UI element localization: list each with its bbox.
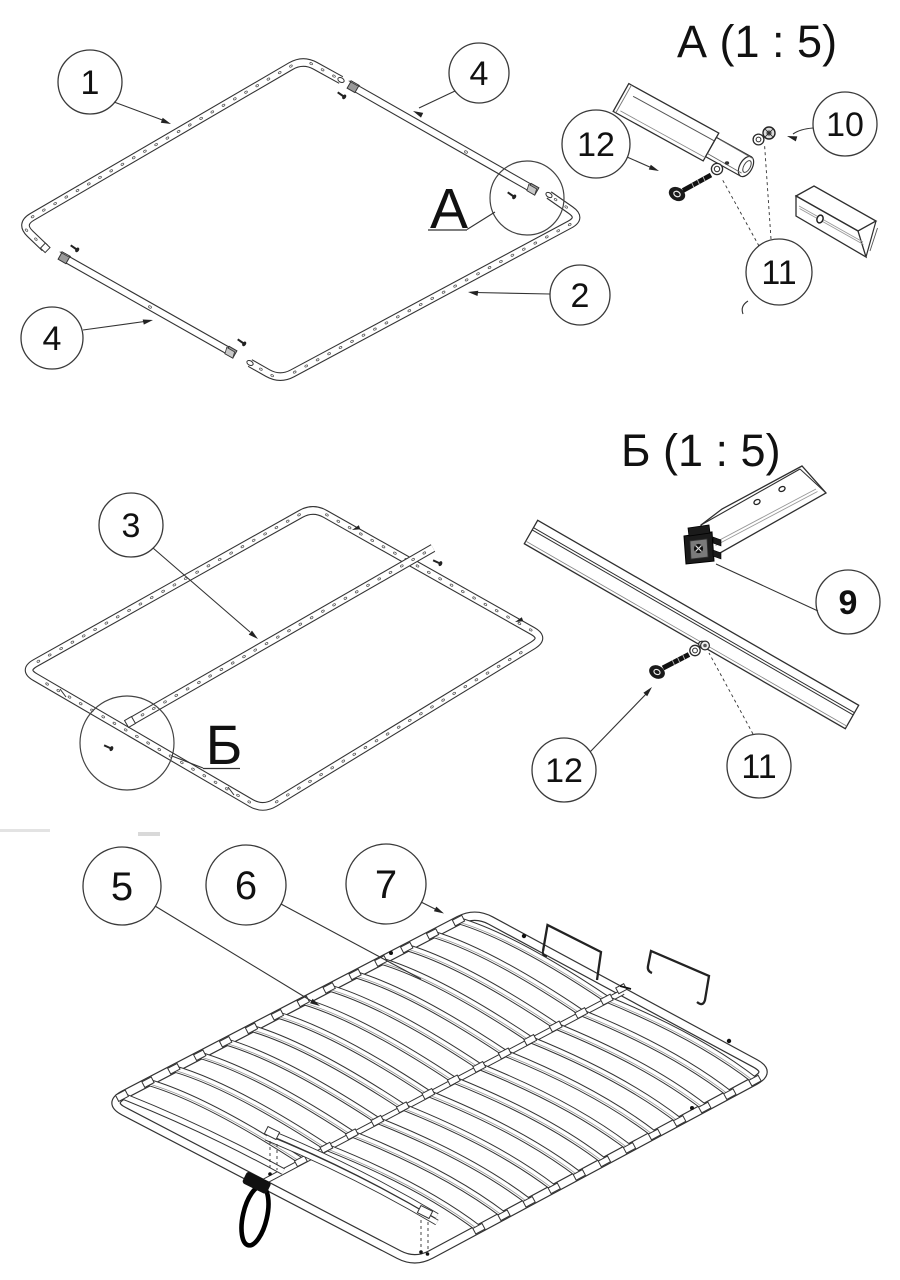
svg-text:10: 10 xyxy=(826,106,864,144)
svg-text:Б (1 : 5): Б (1 : 5) xyxy=(621,425,781,476)
svg-text:12: 12 xyxy=(545,752,583,790)
svg-text:4: 4 xyxy=(43,320,62,358)
svg-text:9: 9 xyxy=(839,584,858,622)
svg-text:6: 6 xyxy=(235,864,257,908)
svg-text:1: 1 xyxy=(81,64,100,102)
svg-text:11: 11 xyxy=(761,254,796,292)
svg-text:11: 11 xyxy=(741,748,776,786)
svg-text:7: 7 xyxy=(375,863,397,907)
svg-text:2: 2 xyxy=(571,277,590,315)
svg-text:А (1 : 5): А (1 : 5) xyxy=(677,16,837,67)
svg-text:А: А xyxy=(430,177,468,241)
svg-text:Б: Б xyxy=(206,713,243,776)
svg-text:3: 3 xyxy=(122,507,141,545)
svg-text:4: 4 xyxy=(470,55,489,93)
svg-text:5: 5 xyxy=(111,865,133,909)
svg-text:12: 12 xyxy=(577,126,615,164)
